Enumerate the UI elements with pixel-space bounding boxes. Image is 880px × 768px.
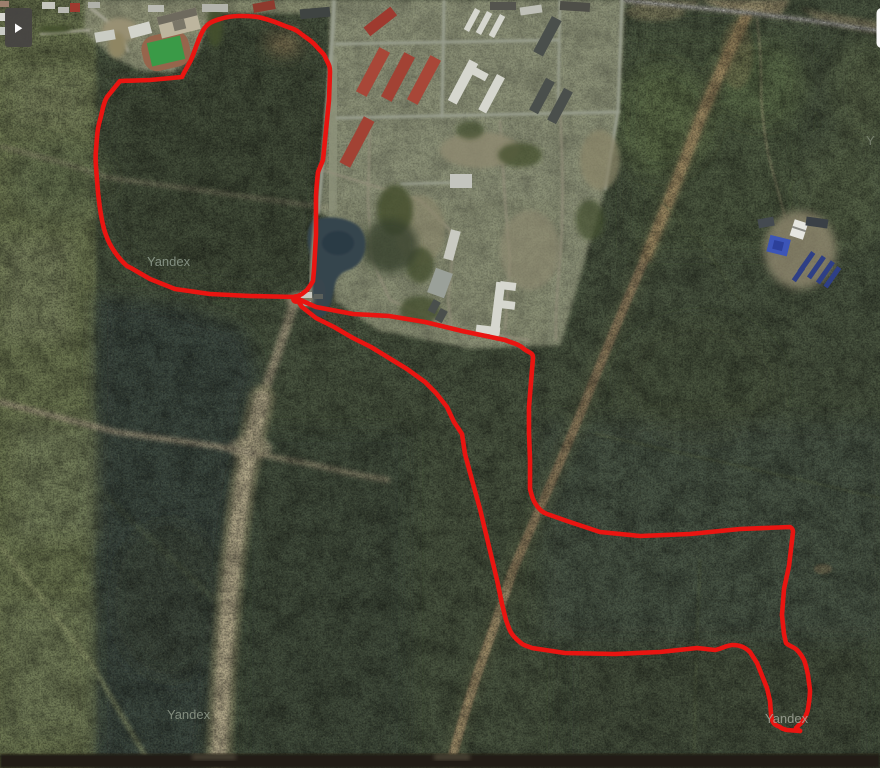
svg-text:Yandex: Yandex — [765, 711, 809, 726]
svg-text:Yandex: Yandex — [147, 254, 191, 269]
svg-text:Yandex: Yandex — [167, 707, 211, 722]
svg-text:Y: Y — [866, 133, 875, 148]
